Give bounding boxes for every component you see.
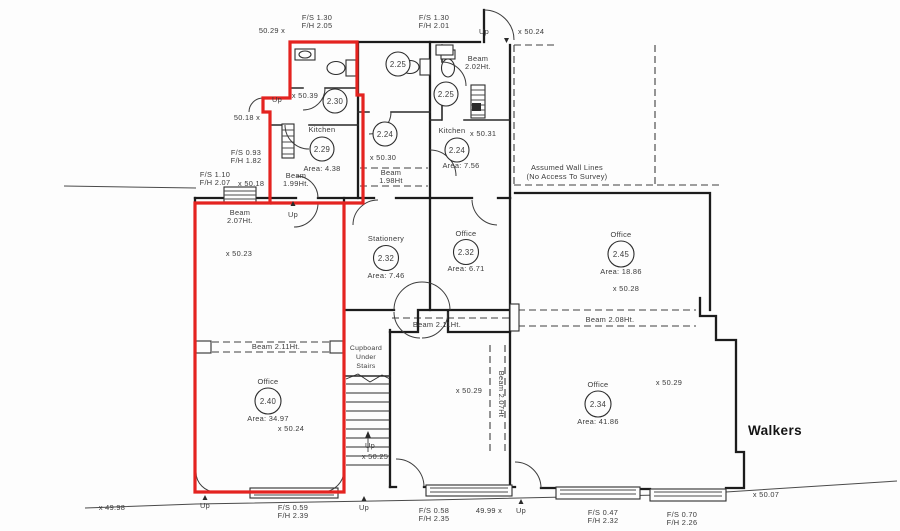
room-number: 2.40 bbox=[260, 397, 277, 406]
level-marker: x 50.18 bbox=[238, 179, 264, 188]
beam-label: Beam 2.11Ht. bbox=[252, 342, 300, 351]
beam-label: Beam 2.11Ht. bbox=[413, 320, 461, 329]
level-marker: 50.18 x bbox=[234, 113, 260, 122]
up-arrow-icon bbox=[365, 431, 371, 438]
up-label: Up bbox=[359, 503, 369, 512]
level-marker: x 50.39 bbox=[292, 91, 318, 100]
room-number: 2.29 bbox=[314, 145, 330, 154]
up-label: Up bbox=[365, 441, 375, 450]
door-fh-label: F/H 2.05 bbox=[302, 21, 333, 30]
up-label: Up bbox=[479, 27, 489, 36]
room-area: Area: 18.86 bbox=[600, 267, 642, 276]
door-fh-label: F/H 2.01 bbox=[419, 21, 450, 30]
room-number: 2.45 bbox=[613, 250, 630, 259]
door-fh-label: F/H 2.35 bbox=[419, 514, 450, 523]
up-label: Up bbox=[200, 501, 210, 510]
door-fh-label: F/H 2.39 bbox=[278, 511, 309, 520]
beam-label: 2.02Ht. bbox=[465, 62, 491, 71]
cupboard-label: Stairs bbox=[356, 363, 375, 370]
level-marker: x 49.98 bbox=[99, 503, 125, 512]
up-label: Up bbox=[288, 210, 298, 219]
level-marker: x 50.25 bbox=[362, 452, 388, 461]
door-fh-label: F/H 1.82 bbox=[231, 156, 262, 165]
beam-label: Beam 2.08Ht. bbox=[586, 315, 635, 324]
walkers-label: Walkers bbox=[748, 423, 802, 438]
room-area: Area: 34.97 bbox=[247, 414, 289, 423]
level-marker: x 50.30 bbox=[370, 153, 396, 162]
room-number: 2.25 bbox=[438, 90, 455, 99]
room-number: 2.24 bbox=[449, 146, 466, 155]
up-arrow-icon bbox=[519, 499, 524, 504]
door-fh-label: F/H 2.07 bbox=[200, 178, 231, 187]
level-marker: x 50.31 bbox=[470, 129, 496, 138]
level-marker: x 50.24 bbox=[278, 424, 304, 433]
beam-label: Beam 2.07Ht bbox=[497, 371, 506, 417]
room-name: Office bbox=[588, 380, 609, 389]
floor-plan-sheet: 2.25 2.25 2.30 2.24 2.29 2.24 2.32 2.32 … bbox=[0, 0, 900, 531]
cupboard-label: Cupboard bbox=[350, 345, 382, 352]
level-marker: x 50.07 bbox=[753, 490, 779, 499]
kitchen-unit bbox=[282, 124, 294, 158]
level-marker: 50.29 x bbox=[259, 26, 285, 35]
room-area: Area: 7.56 bbox=[442, 161, 479, 170]
toilet-icon bbox=[420, 59, 430, 75]
door-fh-label: F/H 2.26 bbox=[667, 518, 698, 527]
beam-label: 1.99Ht. bbox=[283, 179, 309, 188]
level-marker: x 50.28 bbox=[613, 284, 639, 293]
room-area: Area: 4.38 bbox=[303, 164, 340, 173]
room-area: Area: 41.86 bbox=[577, 417, 619, 426]
room-number: 2.30 bbox=[327, 97, 344, 106]
room-name: Stationery bbox=[368, 234, 404, 243]
level-marker: 49.99 x bbox=[476, 506, 502, 515]
beam-label: 2.07Ht. bbox=[227, 216, 253, 225]
cupboard-label: Under bbox=[356, 354, 376, 361]
level-marker: x 50.29 bbox=[656, 378, 682, 387]
assumed-walls-note: Assumed Wall Lines bbox=[531, 163, 603, 172]
room-area: Area: 7.46 bbox=[367, 271, 404, 280]
upper-stair-ladder bbox=[471, 85, 485, 118]
down-arrow-icon bbox=[504, 38, 509, 43]
room-name: Office bbox=[611, 230, 632, 239]
level-marker: x 50.29 bbox=[456, 386, 482, 395]
room-area: Area: 6.71 bbox=[447, 264, 484, 273]
room-name: Office bbox=[258, 377, 279, 386]
room-number-circles: 2.25 2.25 2.30 2.24 2.29 2.24 2.32 2.32 … bbox=[255, 52, 634, 417]
beam-label: 1.98Ht bbox=[379, 176, 403, 185]
up-arrow-icon bbox=[203, 495, 208, 500]
room-number: 2.24 bbox=[377, 130, 394, 139]
floor-plan-drawing: 2.25 2.25 2.30 2.24 2.29 2.24 2.32 2.32 … bbox=[0, 0, 900, 531]
level-marker: x 50.24 bbox=[518, 27, 544, 36]
door-fh-label: F/H 2.32 bbox=[588, 516, 619, 525]
up-label: Up bbox=[516, 506, 526, 515]
sink-icon bbox=[436, 45, 453, 55]
up-label: Up bbox=[272, 95, 282, 104]
level-marker: x 50.23 bbox=[226, 249, 252, 258]
room-number: 2.25 bbox=[390, 60, 407, 69]
room-number: 2.32 bbox=[458, 248, 474, 257]
room-number: 2.34 bbox=[590, 400, 607, 409]
room-number: 2.32 bbox=[378, 254, 394, 263]
assumed-walls-note: (No Access To Survey) bbox=[527, 172, 608, 181]
room-name: Office bbox=[456, 229, 477, 238]
site-boundary-lines bbox=[64, 186, 897, 508]
up-arrow-icon bbox=[362, 496, 367, 501]
room-name: Kitchen bbox=[309, 125, 336, 134]
room-name: Kitchen bbox=[439, 126, 466, 135]
toilet-icon bbox=[346, 60, 356, 76]
